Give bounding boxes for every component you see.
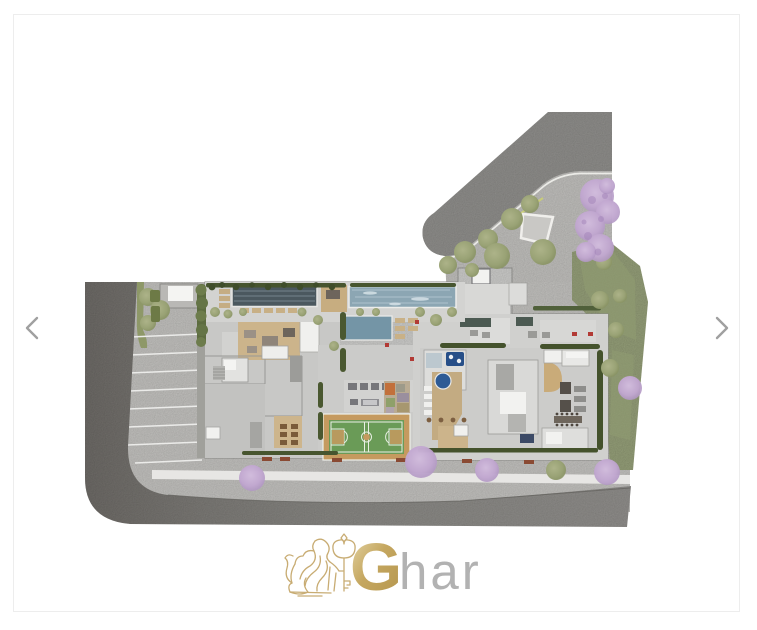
svg-text:G: G — [350, 530, 402, 605]
svg-text:har: har — [399, 543, 482, 600]
